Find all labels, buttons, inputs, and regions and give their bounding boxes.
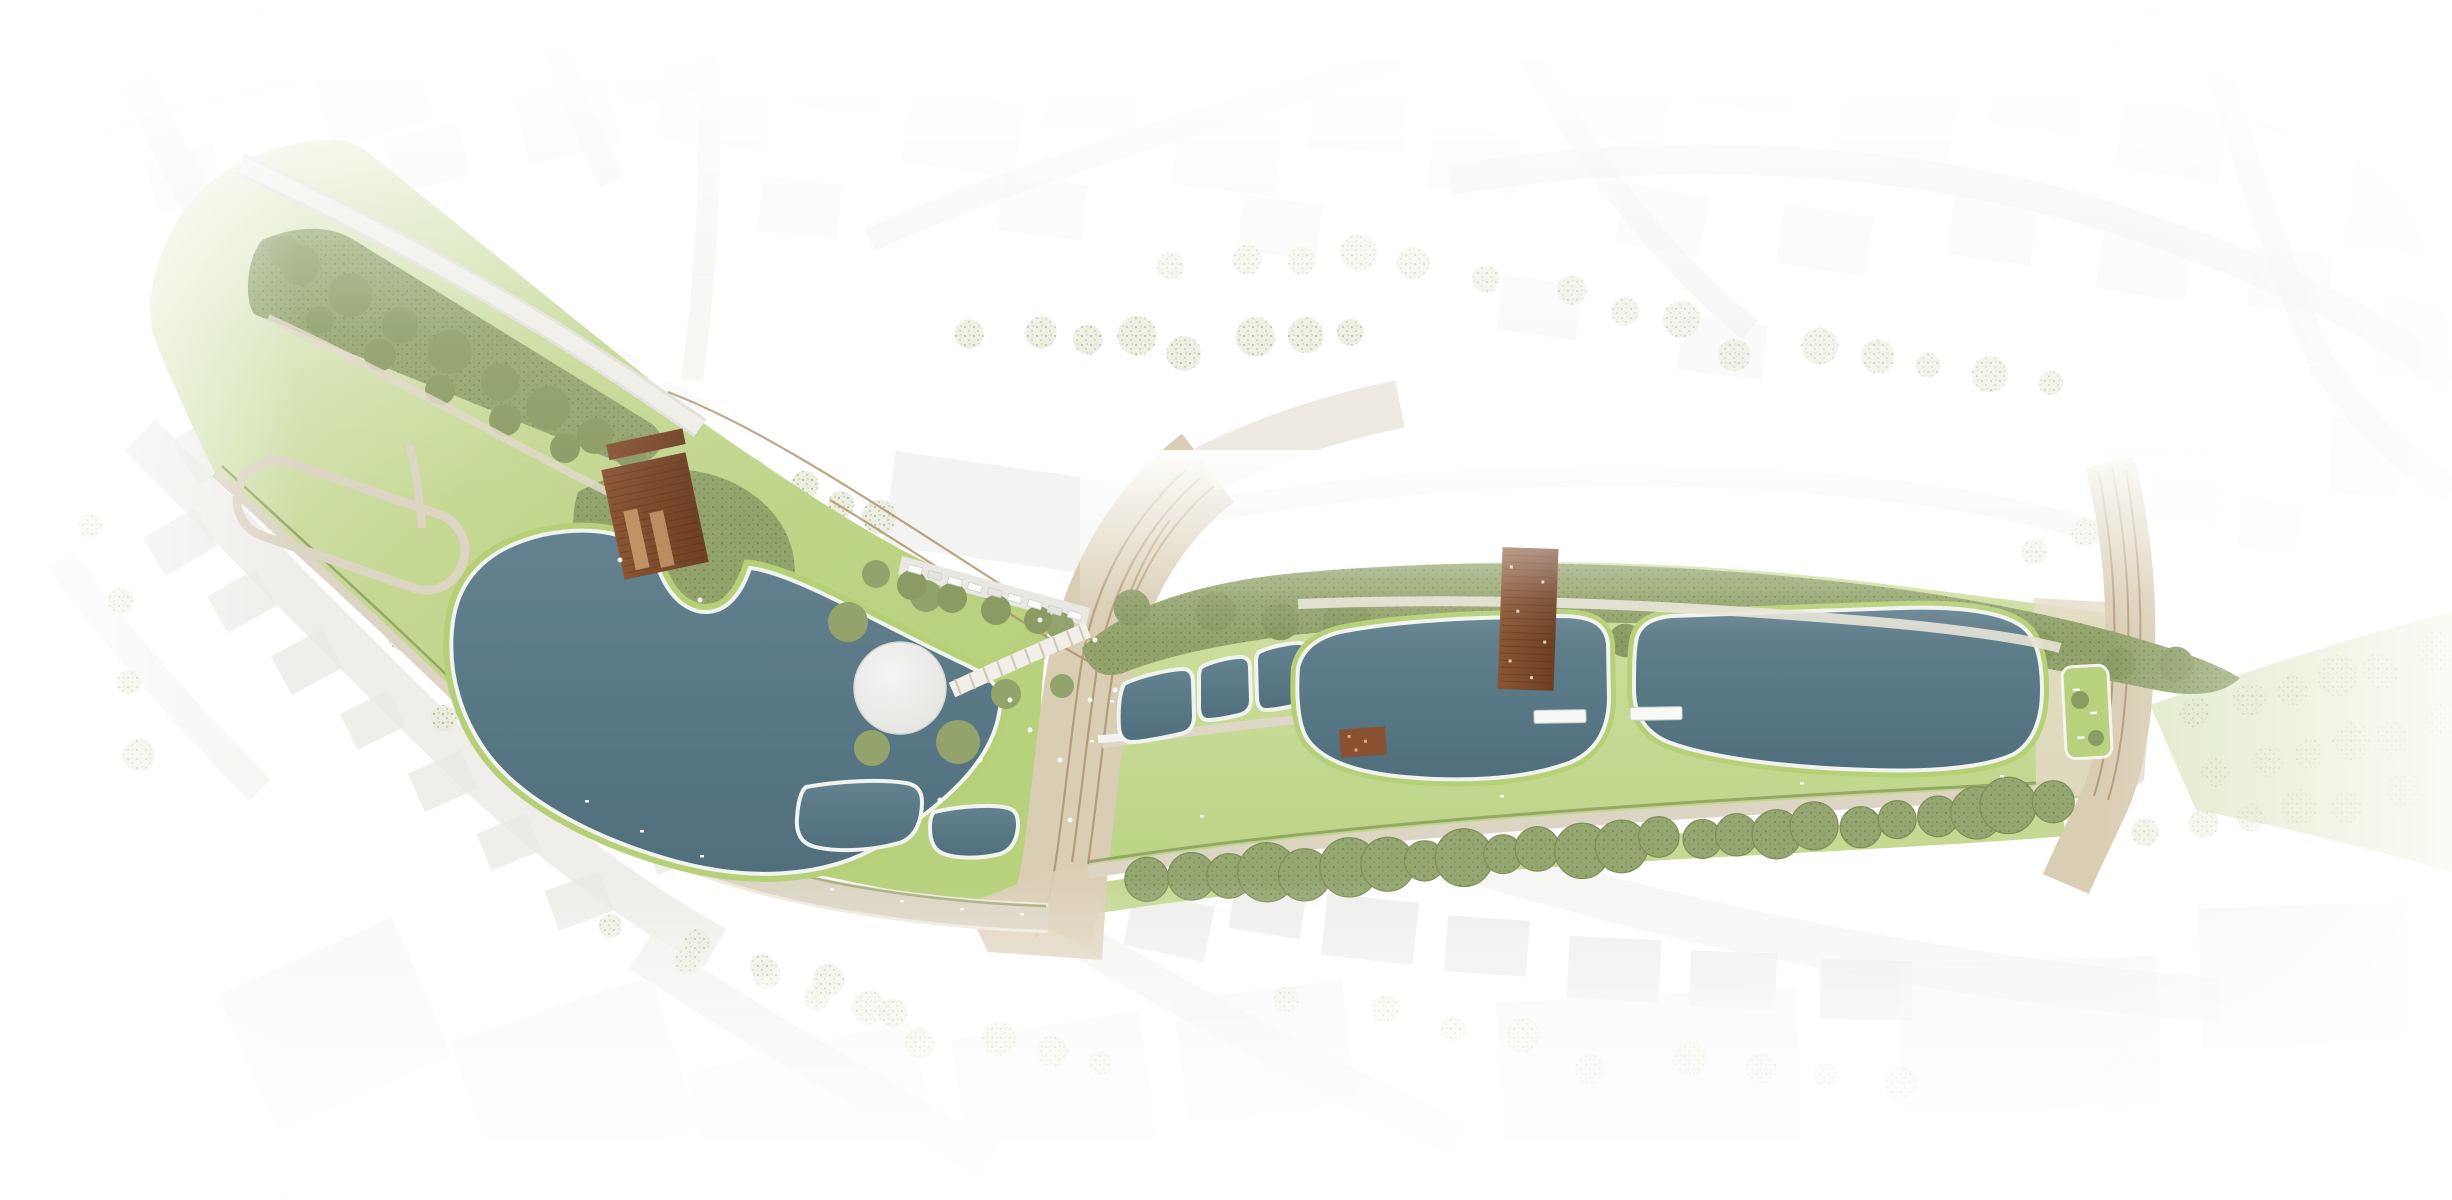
round-pavilion: [854, 642, 946, 734]
tree-texture: [1878, 801, 1916, 839]
tree-texture: [2032, 781, 2074, 823]
masterplan-canvas: [0, 0, 2452, 1200]
masterplan-stage: [0, 0, 2452, 1200]
tree-texture: [1639, 817, 1680, 858]
south-small-deck: [1339, 726, 1387, 757]
tree-texture: [431, 705, 457, 731]
tree-texture: [1716, 814, 1758, 856]
tree-texture: [1515, 827, 1559, 871]
tree-texture: [1790, 802, 1838, 850]
tree-texture: [1980, 777, 2036, 833]
tree-texture: [1840, 807, 1881, 848]
